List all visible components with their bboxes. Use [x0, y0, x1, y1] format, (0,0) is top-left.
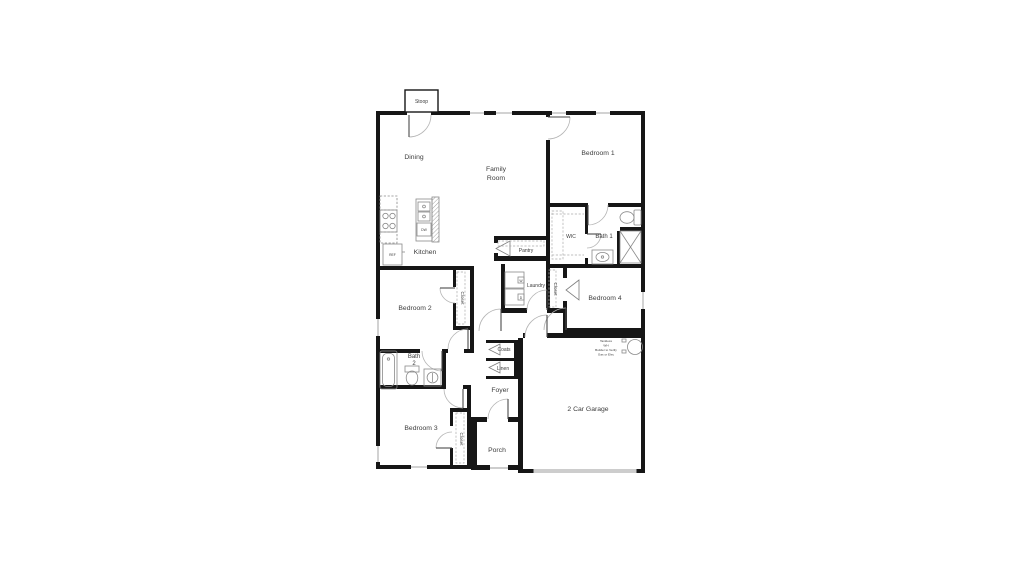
tankless-wh-unit — [628, 340, 643, 355]
label-garage: 2 Car Garage — [567, 406, 608, 413]
label-kitchen: Kitchen — [414, 249, 437, 256]
exterior-walls — [376, 111, 645, 473]
label-bath-2-1: Bath — [408, 354, 420, 360]
label-refrigerator: REF — [389, 253, 396, 257]
floor-plan-page: Stoop Dining Family Room Bedroom 1 Kitch… — [0, 0, 1024, 575]
label-dishwasher: DW — [421, 228, 427, 232]
label-closet-bedroom4: Closet — [553, 282, 558, 296]
label-wh-note-2: WH — [603, 344, 608, 348]
label-pantry: Pantry — [519, 248, 534, 254]
label-family-room-1: Family — [486, 166, 507, 173]
label-stoop: Stoop — [415, 99, 428, 105]
label-wh-note-3: Builder to Verify — [595, 348, 617, 352]
label-family-room-2: Room — [487, 175, 505, 182]
interior-walls — [378, 111, 645, 469]
label-bedroom-4: Bedroom 4 — [588, 295, 621, 302]
label-washer: W — [519, 279, 523, 283]
label-coats: Coats — [497, 347, 511, 353]
label-wh-note-4: Gas or Elec — [598, 353, 615, 357]
label-bedroom-1: Bedroom 1 — [581, 150, 614, 157]
label-closet-bedroom3: Closet — [459, 432, 464, 446]
label-porch: Porch — [488, 447, 506, 454]
toilet-1-bowl — [620, 212, 634, 224]
label-dining: Dining — [404, 154, 423, 161]
floor-plan-drawing: Stoop Dining Family Room Bedroom 1 Kitch… — [0, 0, 1024, 575]
label-closet-bedroom2: Closet — [460, 291, 465, 305]
label-foyer: Foyer — [491, 387, 509, 394]
island-bar-counter — [432, 197, 439, 242]
label-bath-1: Bath 1 — [595, 234, 613, 240]
water-heater — [622, 339, 643, 355]
label-bedroom-3: Bedroom 3 — [404, 425, 437, 432]
toilet-2-bowl — [406, 371, 418, 385]
laundry-appliances — [505, 272, 524, 305]
label-bedroom-2: Bedroom 2 — [398, 305, 431, 312]
label-linen: Linen — [497, 366, 509, 372]
label-wh-note-1: Tankless — [600, 339, 612, 343]
toilet-1-tank — [634, 210, 641, 225]
label-wic: WIC — [566, 234, 576, 240]
label-laundry: Laundry — [527, 283, 546, 289]
label-dryer: D — [520, 296, 523, 300]
